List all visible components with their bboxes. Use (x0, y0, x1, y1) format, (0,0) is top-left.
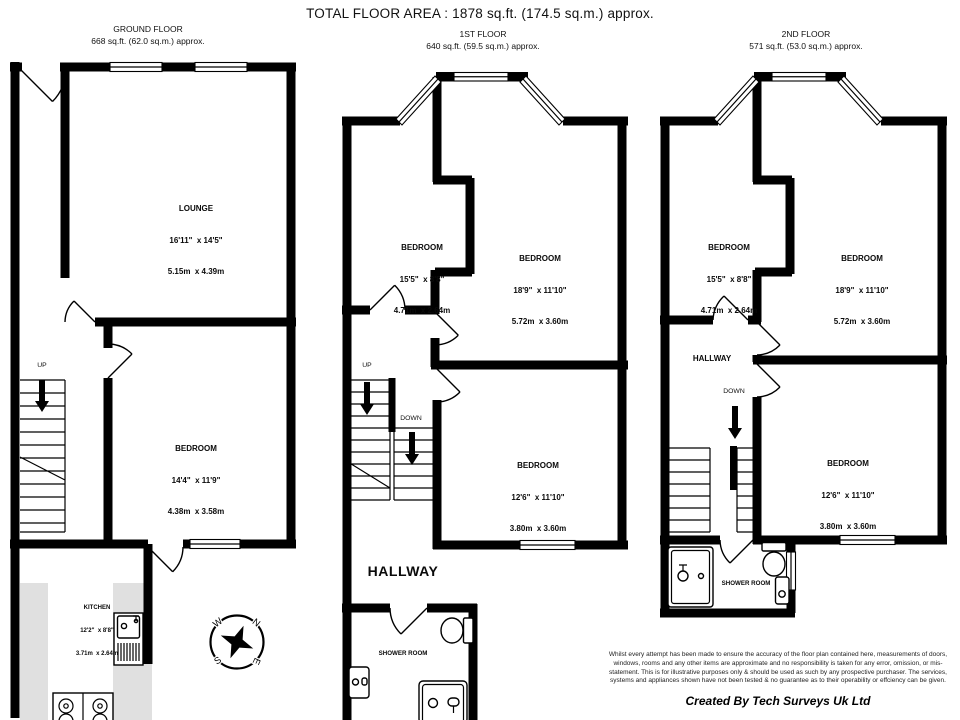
page-title: TOTAL FLOOR AREA : 1878 sq.ft. (174.5 sq… (0, 6, 960, 21)
toilet-icon (441, 618, 473, 643)
room-label-lounge: LOUNGE 16'11" x 14'5" 5.15m x 4.39m (168, 183, 224, 299)
room-label-ff-bedroom-back: BEDROOM 12'6" x 11'10" 3.80m x 3.60m (510, 440, 566, 556)
room-label-sf-bedroom-front-left: BEDROOM 15'5" x 8'8" 4.71m x 2.64m (701, 222, 757, 338)
bay-window (396, 72, 565, 125)
hob-icon (53, 693, 113, 720)
compass-south: S (212, 655, 224, 668)
second-floor-header: 2ND FLOOR 571 sq.ft. (53.0 sq.m.) approx… (749, 29, 862, 53)
bay-window (714, 72, 883, 125)
stairs-down-label: DOWN (400, 415, 422, 422)
room-label-gf-bedroom: BEDROOM 14'4" x 11'9" 4.38m x 3.58m (168, 423, 224, 539)
credit-text: Created By Tech Surveys Uk Ltd (600, 694, 956, 708)
first-floor-header: 1ST FLOOR 640 sq.ft. (59.5 sq.m.) approx… (426, 29, 539, 53)
stairs-up-label: UP (362, 362, 371, 369)
first-floor-walls (342, 77, 628, 720)
stairs-up (20, 380, 65, 532)
kitchen-sink-icon (114, 613, 143, 665)
room-label-ff-bedroom-front-right: BEDROOM 18'9" x 11'10" 5.72m x 3.60m (512, 233, 568, 349)
stairs-up-label: UP (37, 362, 46, 369)
floor-area: 640 sq.ft. (59.5 sq.m.) approx. (426, 41, 539, 53)
room-label-kitchen: KITCHEN 12'2" x 8'8" 3.71m x 2.64m (76, 589, 118, 675)
stairs-down-label: DOWN (723, 388, 745, 395)
stairs-up-down (348, 378, 433, 500)
sink-icon (776, 577, 790, 604)
first-floor-plan (340, 70, 632, 720)
floor-name: 1ST FLOOR (426, 29, 539, 41)
disclaimer-text: Whilst every attempt has been made to en… (600, 651, 956, 686)
room-label-sf-bedroom-back: BEDROOM 12'6" x 11'10" 3.80m x 3.60m (820, 438, 876, 554)
shower-tray-icon (419, 681, 467, 720)
room-label-ff-hallway: HALLWAY (368, 563, 439, 579)
toilet-icon (762, 543, 786, 577)
floorplan-page: TOTAL FLOOR AREA : 1878 sq.ft. (174.5 sq… (0, 0, 960, 720)
stairs-down (668, 406, 753, 532)
up-arrow-icon (360, 382, 374, 415)
room-label-ff-shower-room: SHOWER ROOM (379, 650, 428, 657)
sink-icon (349, 667, 369, 698)
room-label-ff-bedroom-front-left: BEDROOM 15'5" x 8'8" 4.71m x 2.64m (394, 222, 450, 338)
down-arrow-icon (405, 432, 419, 465)
up-arrow-icon (35, 380, 49, 412)
ground-floor-header: GROUND FLOOR 668 sq.ft. (62.0 sq.m.) app… (91, 24, 204, 48)
room-label-sf-bedroom-front-right: BEDROOM 18'9" x 11'10" 5.72m x 3.60m (834, 233, 890, 349)
floor-area: 571 sq.ft. (53.0 sq.m.) approx. (749, 41, 862, 53)
room-label-sf-hallway: HALLWAY (693, 354, 731, 363)
shower-tray-icon (668, 547, 713, 607)
compass-west: W (211, 616, 225, 630)
floor-area: 668 sq.ft. (62.0 sq.m.) approx. (91, 36, 204, 48)
floor-name: GROUND FLOOR (91, 24, 204, 36)
down-arrow-icon (728, 406, 742, 439)
floor-name: 2ND FLOOR (749, 29, 862, 41)
second-floor-plan (658, 70, 950, 630)
compass-rose: W N S E (199, 604, 275, 680)
room-label-sf-shower-room: SHOWER ROOM (722, 580, 771, 587)
